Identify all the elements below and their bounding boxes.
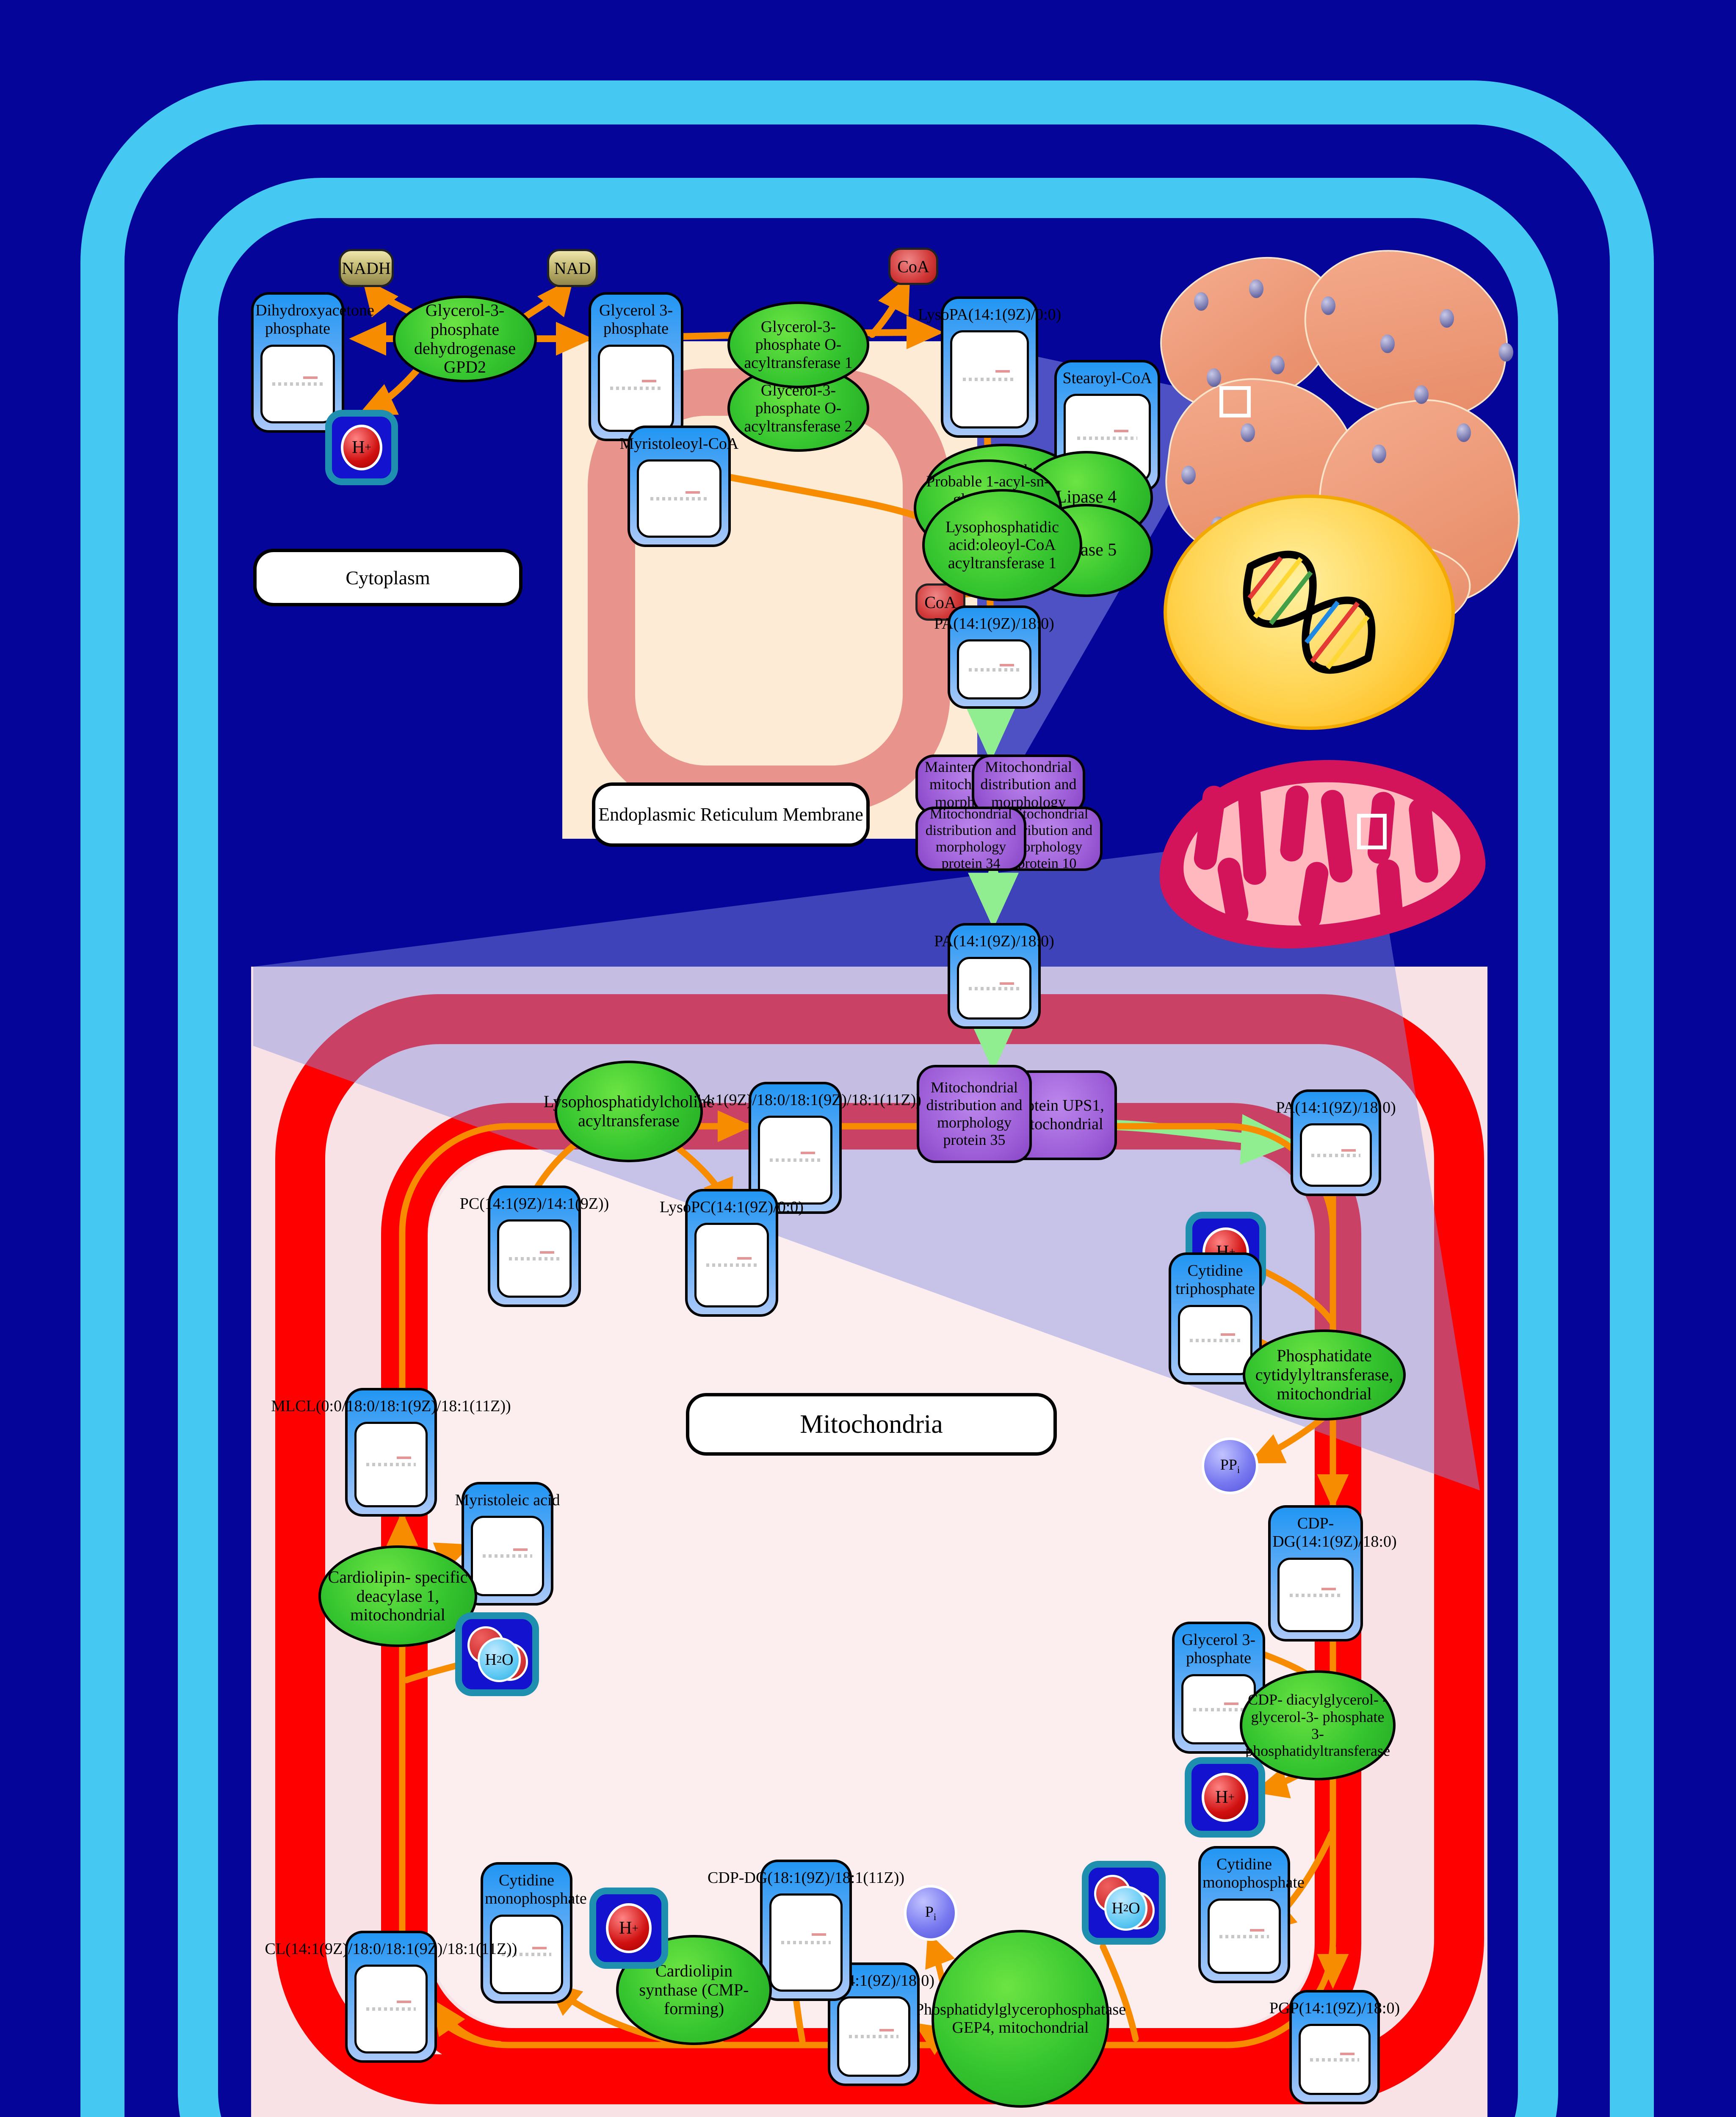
metabolite-label: Glycerol 3-phosphate (593, 301, 679, 337)
structure-thumbnail (1300, 1123, 1372, 1187)
cytoplasm-label: Cytoplasm (253, 549, 522, 606)
structure-thumbnail (957, 639, 1031, 699)
h2o-node-bottom[interactable]: H2O (1082, 1861, 1166, 1945)
metabolite-pc[interactable]: PC(14:1(9Z)/14:1(9Z)) (488, 1186, 581, 1307)
metabolite-lysopc[interactable]: LysoPC(14:1(9Z)/0:0) (685, 1189, 778, 1317)
enzyme-gep4[interactable]: Phosphatidylglycerophosphatase GEP4, mit… (932, 1930, 1109, 2108)
enzyme-lpcat[interactable]: Lysophosphatidylcholine acyltransferase (555, 1061, 703, 1162)
metabolite-label: Cytidine monophosphate (1202, 1855, 1286, 1891)
hplus-node-er[interactable]: H+ (325, 410, 398, 485)
metabolite-label: PA(14:1(9Z)/18:0) (934, 932, 1054, 951)
metabolite-lysopa[interactable]: LysoPA(14:1(9Z)/0:0) (941, 296, 1038, 438)
metabolite-g3p-er[interactable]: Glycerol 3-phosphate (589, 292, 683, 441)
coa-label: CoA (924, 592, 956, 612)
mitochondria-label: Mitochondria (686, 1393, 1057, 1456)
enzyme-lpaat1[interactable]: Lysophosphatidic acid:oleoyl-CoA acyltra… (922, 489, 1082, 601)
metabolite-label: PGP(14:1(9Z)/18:0) (1269, 1999, 1400, 2018)
structure-thumbnail (1299, 2024, 1371, 2095)
structure-thumbnail (837, 1996, 910, 2077)
metabolite-label: MLCL(0:0/18:0/18:1(9Z)/18:1(11Z)) (271, 1397, 511, 1415)
metabolite-label: PA(14:1(9Z)/18:0) (1276, 1099, 1396, 1117)
structure-thumbnail (598, 345, 674, 432)
coa-label: CoA (897, 257, 929, 276)
metabolite-label: Myristoleoyl-CoA (620, 435, 739, 453)
metabolite-label: PC(14:1(9Z)/14:1(9Z)) (460, 1195, 609, 1213)
pathway-canvas: { "labels": { "cytoplasm": "Cytoplasm", … (0, 0, 1736, 2117)
hplus-label: H+ (341, 425, 383, 470)
hplus-label: H+ (1202, 1773, 1248, 1822)
h2o-label: H2O (1104, 1886, 1148, 1931)
metabolite-label: LysoPA(14:1(9Z)/0:0) (918, 306, 1062, 324)
enzyme-pcyt-mito[interactable]: Phosphatidate cytidylyltransferase, mito… (1243, 1329, 1406, 1421)
metabolite-label: CDP-DG(14:1(9Z)/18:0) (1272, 1515, 1359, 1550)
metabolite-cmp-bottom[interactable]: Cytidine monophosphate (481, 1862, 572, 2004)
nad-label: NAD (554, 258, 591, 278)
hplus-node-bottom[interactable]: H+ (589, 1888, 668, 1969)
metabolite-label: Cytidine monophosphate (485, 1871, 568, 1907)
h2o-label: H2O (478, 1637, 521, 1682)
structure-thumbnail (1277, 1558, 1354, 1632)
hplus-label: H+ (606, 1903, 651, 1953)
metabolite-cdp-dg-right[interactable]: CDP-DG(14:1(9Z)/18:0) (1268, 1505, 1363, 1642)
structure-thumbnail (354, 1965, 428, 2053)
nad-node[interactable]: NAD (547, 249, 598, 287)
structure-thumbnail (637, 459, 721, 538)
metabolite-label: Myristoleic acid (455, 1491, 560, 1509)
metabolite-dhap[interactable]: Dihydroxyacetone phosphate (251, 292, 344, 433)
structure-thumbnail (694, 1223, 769, 1307)
h2o-node-left[interactable]: H2O (455, 1612, 539, 1696)
structure-thumbnail (950, 330, 1029, 428)
enzyme-cdp-dag-g3p[interactable]: CDP- diacylglycerol- -glycerol-3- phosph… (1240, 1670, 1396, 1780)
metabolite-pa-er[interactable]: PA(14:1(9Z)/18:0) (948, 605, 1041, 709)
metabolite-pa-mito[interactable]: PA(14:1(9Z)/18:0) (1291, 1089, 1381, 1196)
hplus-node-mito-right[interactable]: H+ (1185, 1757, 1265, 1838)
structure-thumbnail (471, 1516, 544, 1596)
metabolite-cmp-right[interactable]: Cytidine monophosphate (1198, 1846, 1290, 1983)
metabolite-myristoleoyl-coa[interactable]: Myristoleoyl-CoA (628, 426, 731, 547)
nadh-node[interactable]: NADH (339, 249, 394, 287)
metabolite-label: Stearoyl-CoA (1062, 369, 1152, 387)
metabolite-cdp-dg-bottom[interactable]: CDP-DG(18:1(9Z)/18:1(11Z)) (760, 1860, 852, 2001)
structure-thumbnail (1178, 1305, 1252, 1375)
protein-mdm35[interactable]: Mitochondrial distribution and morpholog… (917, 1065, 1032, 1163)
nadh-label: NADH (342, 258, 391, 278)
ppi-node[interactable]: PPi (1202, 1437, 1258, 1494)
enzyme-cld1[interactable]: Cardiolipin- specific deacylase 1, mitoc… (318, 1545, 477, 1647)
structure-thumbnail (497, 1219, 572, 1298)
structure-thumbnail (260, 345, 335, 423)
metabolite-mlcl[interactable]: MLCL(0:0/18:0/18:1(9Z)/18:1(11Z)) (345, 1388, 437, 1517)
pi-node[interactable]: Pi (904, 1885, 957, 1941)
structure-thumbnail (957, 957, 1031, 1020)
structure-thumbnail (354, 1422, 428, 1507)
metabolite-pa-mid[interactable]: PA(14:1(9Z)/18:0) (948, 923, 1041, 1029)
metabolite-pgp[interactable]: PGP(14:1(9Z)/18:0) (1289, 1990, 1380, 2104)
coa-node-top[interactable]: CoA (888, 248, 938, 285)
metabolite-label: Dihydroxyacetone phosphate (255, 301, 340, 337)
metabolite-label: Cytidine triphosphate (1173, 1262, 1258, 1298)
metabolite-label: LysoPC(14:1(9Z)/0:0) (660, 1198, 804, 1216)
pi-label: Pi (925, 1903, 937, 1923)
metabolite-label: PA(14:1(9Z)/18:0) (934, 615, 1054, 633)
enzyme-gpd2[interactable]: Glycerol-3-phosphate dehydrogenase GPD2 (393, 296, 537, 382)
er-membrane-label: Endoplasmic Reticulum Membrane (592, 782, 870, 847)
metabolite-label: CDP-DG(18:1(9Z)/18:1(11Z)) (708, 1869, 904, 1887)
enzyme-gpat1[interactable]: Glycerol-3-phosphate O-acyltransferase 1 (727, 301, 869, 388)
ppi-label: PPi (1220, 1456, 1240, 1476)
protein-mdm34[interactable]: Mitochondrial distribution and morpholog… (915, 807, 1026, 871)
structure-thumbnail (769, 1893, 843, 1992)
metabolite-label: Glycerol 3-phosphate (1176, 1631, 1261, 1667)
structure-thumbnail (1208, 1899, 1281, 1974)
metabolite-label: CL(14:1(9Z)/18:0/18:1(9Z)/18:1(11Z)) (265, 1940, 517, 1958)
metabolite-cl-bottom[interactable]: CL(14:1(9Z)/18:0/18:1(9Z)/18:1(11Z)) (345, 1931, 437, 2063)
